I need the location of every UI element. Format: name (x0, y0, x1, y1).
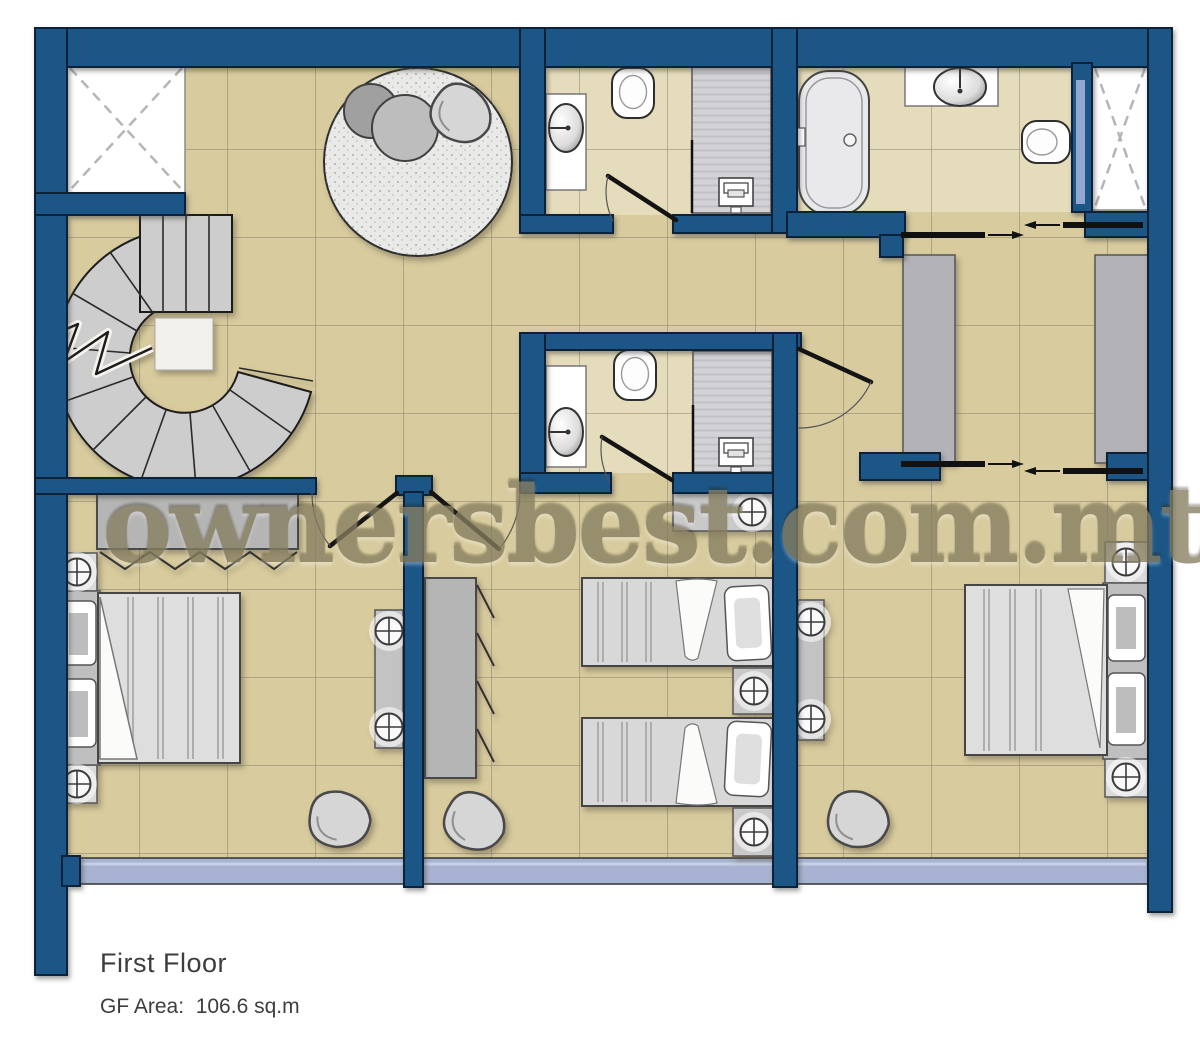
floor-area-label: GF Area: 106.6 sq.m (100, 995, 300, 1019)
bathtub-icon (799, 71, 869, 215)
wardrobe (97, 493, 298, 549)
pillow-inner (69, 691, 88, 737)
living-area (324, 68, 512, 256)
stair-landing (155, 318, 213, 370)
wardrobe (425, 578, 476, 778)
elevator-shaft (67, 65, 185, 193)
wall-bedroom-divider (404, 492, 423, 887)
wardrobe (903, 255, 955, 463)
wardrobe (1095, 255, 1148, 463)
pouf-icon (372, 95, 438, 161)
wall-exterior-left (35, 28, 67, 975)
glazed-panel (1076, 80, 1085, 204)
light-shaft (1092, 65, 1148, 210)
page-title: First Floor (100, 948, 300, 979)
floor-plan-page: { "window": { "width": 1200, "height": 1… (0, 0, 1200, 1049)
wall-bedroom-divider (773, 333, 797, 887)
pillow-inner (1116, 687, 1136, 733)
caption: First Floor GF Area: 106.6 sq.m (100, 948, 300, 1019)
pillow-inner (1116, 607, 1136, 649)
floor-plan (0, 0, 1200, 1049)
pillow-inner (69, 613, 88, 655)
wall-exterior-right (1148, 28, 1172, 912)
balcony-rail (67, 858, 1148, 884)
wall-exterior-top (35, 28, 1172, 67)
